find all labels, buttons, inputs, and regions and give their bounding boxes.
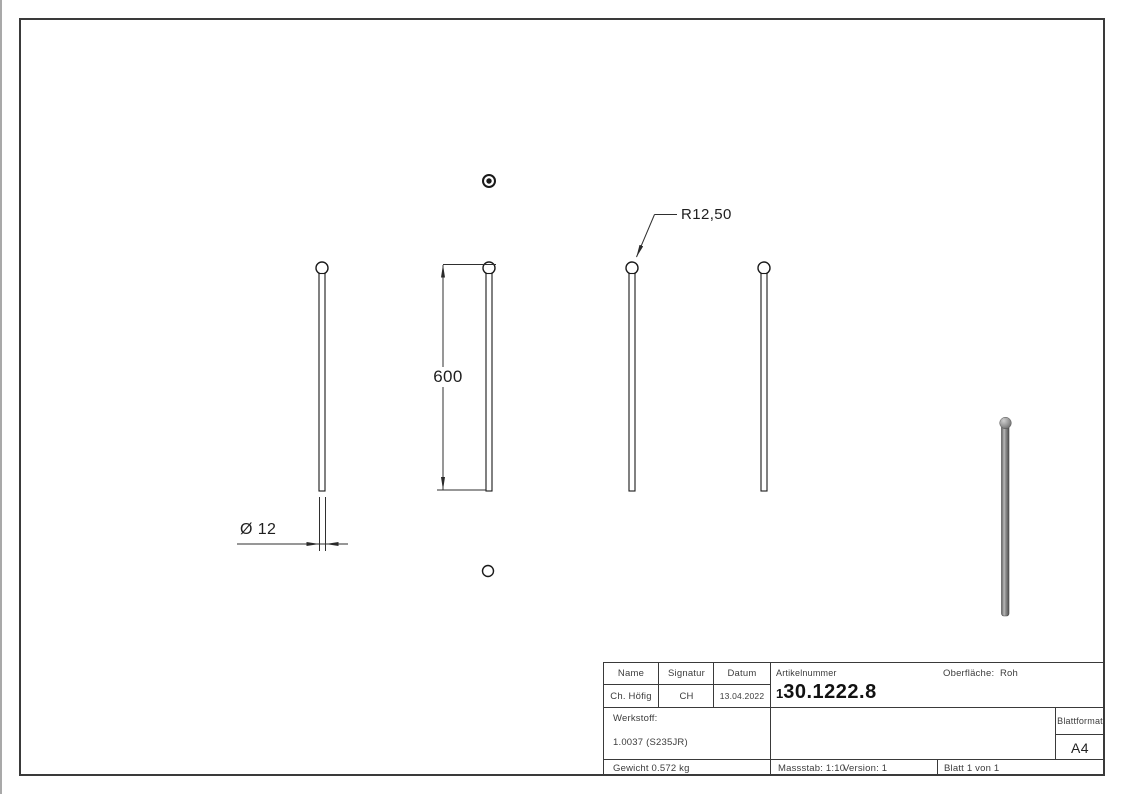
titleblock-werkstoff-value: 1.0037 (S235JR) — [613, 737, 688, 748]
titleblock-line — [1055, 734, 1104, 735]
titleblock-header-name: Name — [603, 668, 659, 679]
titleblock-line — [603, 684, 770, 685]
dimension-diameter-label: Ø 12 — [240, 521, 276, 539]
titleblock-artikelnummer-label: Artikelnummer — [776, 668, 837, 678]
artikelnummer-number: 30.1222.8 — [783, 681, 876, 703]
titleblock-massstab: Massstab: 1:10 — [778, 763, 845, 774]
isometric-rod-shaft — [1002, 425, 1010, 616]
titleblock-header-datum: Datum — [714, 668, 770, 679]
rod-ball-end — [483, 262, 495, 274]
titleblock-gewicht: Gewicht 0.572 kg — [613, 763, 690, 774]
titleblock-line — [770, 662, 771, 775]
rod-shaft — [761, 274, 767, 492]
titleblock-name-value: Ch. Höfig — [603, 691, 659, 702]
titleblock-line — [937, 759, 938, 775]
titleblock-signatur-value: CH — [659, 691, 714, 702]
isometric-view-rod — [1000, 417, 1012, 616]
oberflaeche-label: Oberfläche: — [943, 668, 994, 679]
rod-shaft — [629, 274, 635, 492]
titleblock-blattformat-label: Blattformat — [1056, 716, 1104, 726]
dimension-radius-label: R12,50 — [681, 206, 732, 223]
front-view-rod-3 — [626, 262, 638, 491]
isometric-rod-ball-end — [1000, 417, 1012, 429]
titleblock-datum-value: 13.04.2022 — [714, 691, 770, 701]
radius-leader-lines — [637, 215, 678, 258]
leader-arrow-line — [637, 215, 655, 258]
dimension-length-label: 600 — [429, 367, 467, 387]
front-view-rod-1 — [316, 262, 328, 491]
titleblock-oberflaeche: Oberfläche: Roh — [943, 668, 1018, 679]
titleblock-line — [603, 707, 1104, 708]
rod-shaft — [486, 274, 492, 492]
front-view-rod-4 — [758, 262, 770, 491]
titleblock-header-signatur: Signatur — [659, 668, 714, 679]
bottom-view-circle — [483, 566, 494, 577]
front-view-rod-2 — [483, 262, 495, 491]
top-view-circle — [483, 175, 495, 187]
rod-ball-end — [626, 262, 638, 274]
top-view-center-dot — [486, 178, 491, 183]
titleblock-line — [603, 759, 1104, 760]
rod-shaft — [319, 274, 325, 492]
rod-ball-end — [758, 262, 770, 274]
titleblock-blatt: Blatt 1 von 1 — [944, 763, 999, 774]
drawing-sheet-page: { "drawing_view": { "radius_dim": "R12,5… — [0, 0, 1123, 794]
titleblock-artikelnummer-value: 130.1222.8 — [776, 681, 877, 704]
oberflaeche-value: Roh — [1000, 668, 1018, 679]
titleblock-version: Version: 1 — [843, 763, 887, 774]
titleblock-line — [603, 662, 1104, 663]
rod-ball-end — [316, 262, 328, 274]
titleblock-werkstoff-label: Werkstoff: — [613, 713, 657, 724]
titleblock-blattformat-value: A4 — [1056, 740, 1104, 756]
